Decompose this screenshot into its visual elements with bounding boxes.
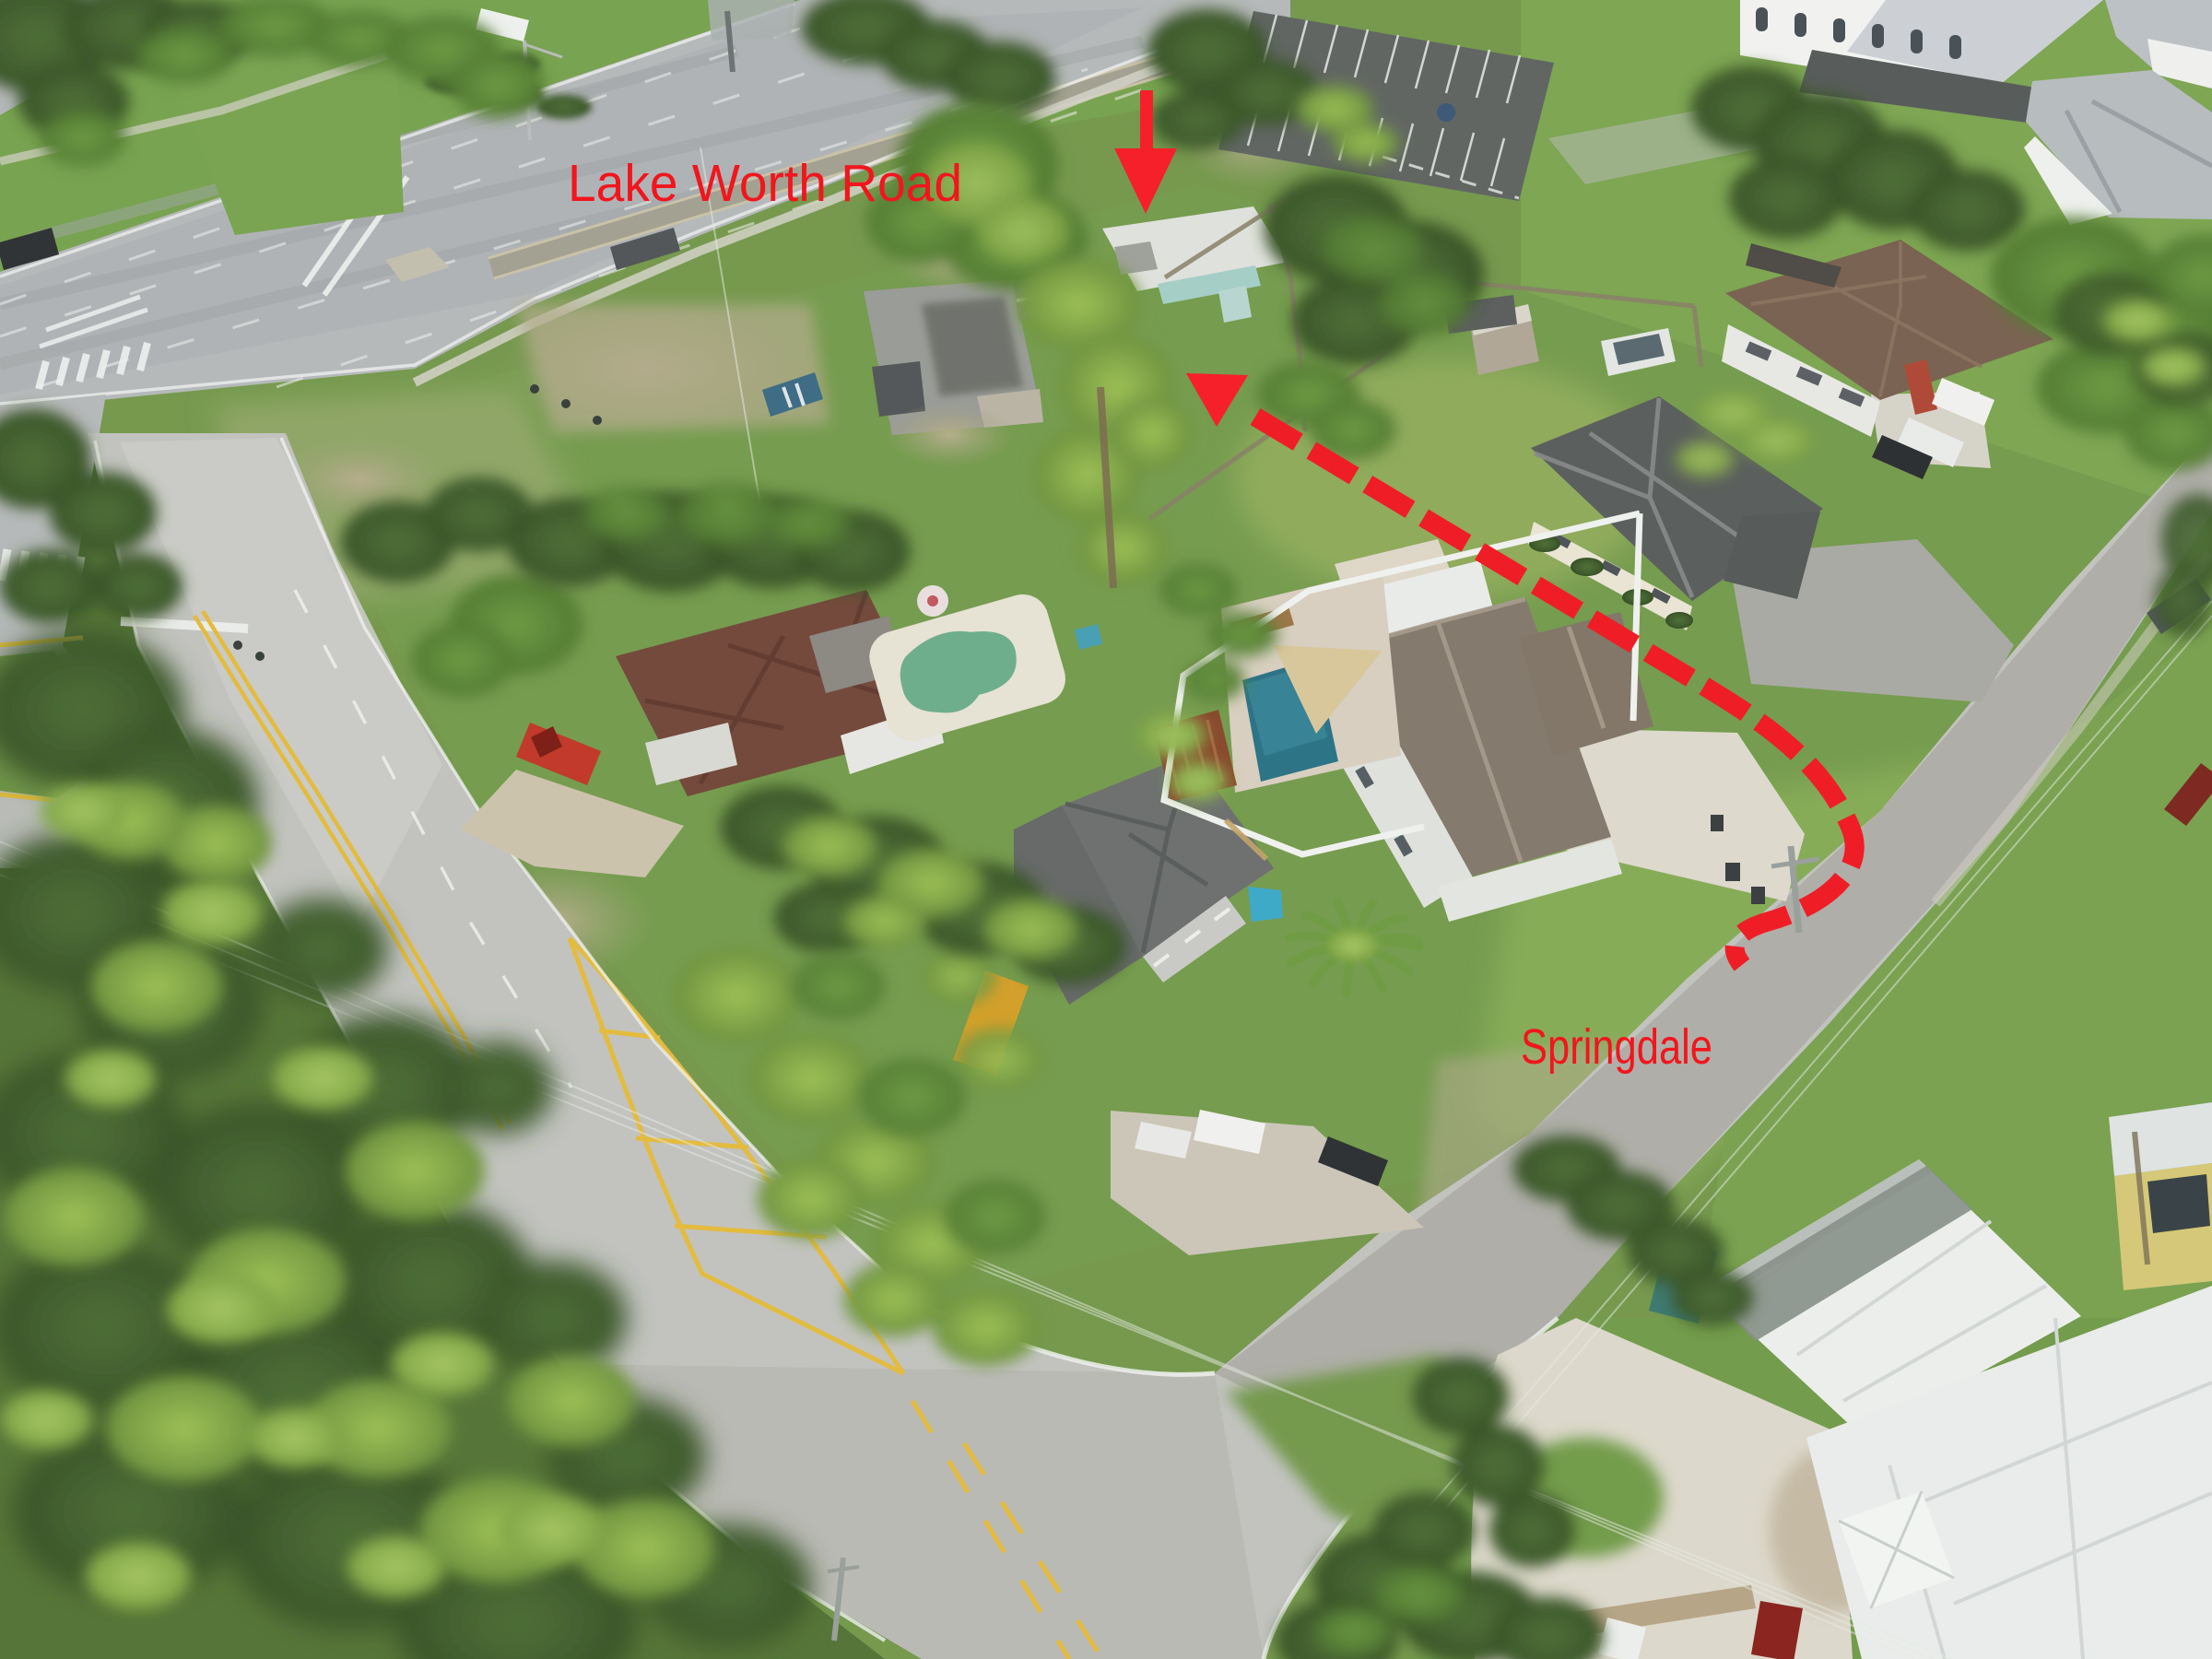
svg-text:Springdale: Springdale xyxy=(1521,1019,1712,1075)
svg-text:Lake Worth Road: Lake Worth Road xyxy=(568,154,962,213)
